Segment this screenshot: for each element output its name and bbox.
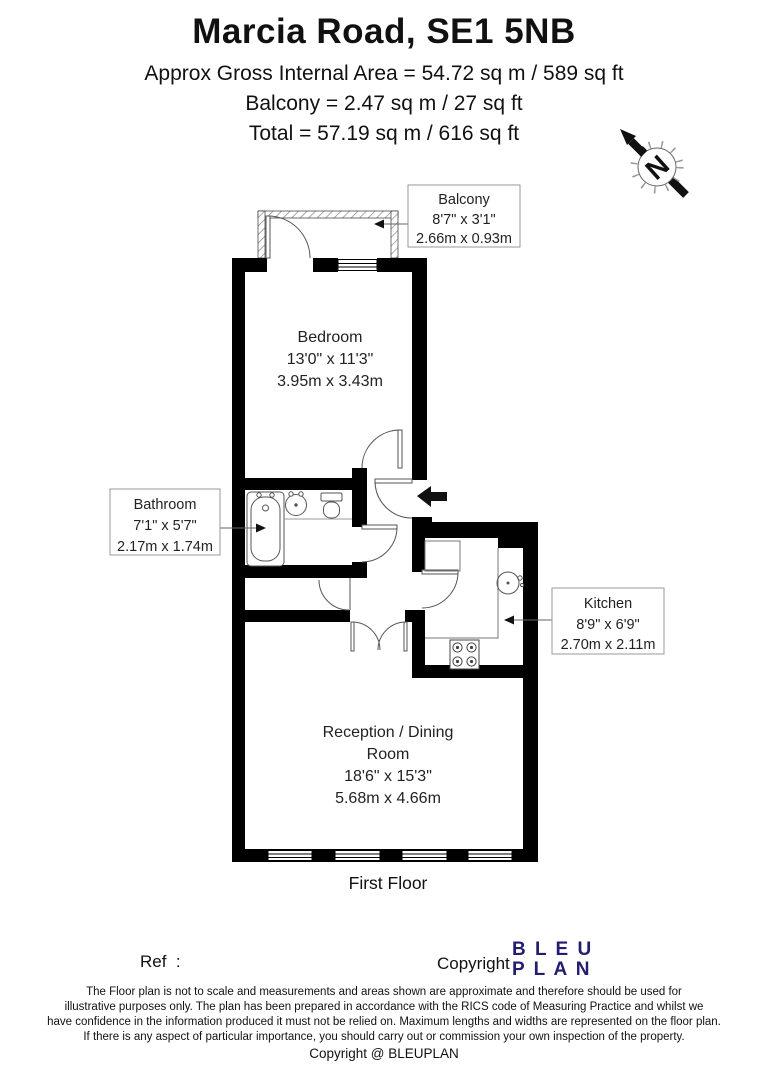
kitchen-name: Kitchen bbox=[584, 596, 632, 612]
balcony-door-swing bbox=[268, 216, 310, 258]
balcony-name: Balcony bbox=[438, 192, 490, 208]
entrance-arrow bbox=[417, 486, 447, 507]
balcony-imperial: 8'7" x 3'1" bbox=[432, 212, 495, 228]
ref-label: Ref : bbox=[140, 952, 181, 972]
kitchen-counter bbox=[425, 548, 498, 638]
reception-imperial: 18'6" x 15'3" bbox=[344, 768, 432, 785]
disclaimer-line-3: have confidence in the information produ… bbox=[0, 1016, 768, 1028]
bedroom-imperial: 13'0" x 11'3" bbox=[287, 351, 374, 368]
reception-door-swing-right bbox=[378, 622, 406, 650]
reception-metric: 5.68m x 4.66m bbox=[335, 790, 441, 807]
disclaimer-line-2: illustrative purposes only. The plan has… bbox=[0, 1001, 768, 1013]
entrance-door-swing bbox=[375, 481, 412, 518]
copyright-line: Copyright @ BLEUPLAN bbox=[0, 1046, 768, 1061]
bathroom-door-leaf bbox=[362, 525, 397, 529]
entrance-door-leaf bbox=[375, 479, 412, 483]
disclaimer-line-4: If there is any aspect of particular imp… bbox=[0, 1031, 768, 1043]
bedroom-door-leaf bbox=[398, 430, 402, 468]
disclaimer-line-1: The Floor plan is not to scale and measu… bbox=[0, 986, 768, 998]
north-arrow: N bbox=[620, 129, 686, 195]
bedroom-metric: 3.95m x 3.43m bbox=[277, 373, 383, 390]
reception-name-2: Room bbox=[367, 746, 410, 763]
balcony-leader-arrow bbox=[374, 220, 384, 229]
hob bbox=[450, 640, 479, 669]
balcony-walls bbox=[258, 211, 398, 258]
reception-door-leaf-left bbox=[351, 622, 354, 651]
balcony-metric: 2.66m x 0.93m bbox=[416, 231, 512, 247]
bedroom-door-swing bbox=[362, 430, 400, 468]
bedroom-name: Bedroom bbox=[298, 329, 363, 346]
reception-label: Reception / Dining Room 18'6" x 15'3" 5.… bbox=[323, 724, 454, 807]
reception-door-leaf-right bbox=[404, 622, 407, 651]
bathroom-name: Bathroom bbox=[134, 497, 197, 513]
floorplan-page: Marcia Road, SE1 5NB Approx Gross Intern… bbox=[0, 0, 768, 1087]
kitchen-door-swing bbox=[422, 572, 458, 608]
reception-door-swing-left bbox=[352, 622, 380, 650]
logo-line-2: P L A N bbox=[512, 960, 593, 980]
kitchen-imperial: 8'9" x 6'9" bbox=[576, 617, 639, 633]
kitchen-cabinet bbox=[425, 541, 460, 571]
copyright-label: Copyright bbox=[437, 954, 510, 974]
doors bbox=[266, 216, 458, 651]
kitchen-metric: 2.70m x 2.11m bbox=[561, 637, 656, 653]
kitchen-fixtures bbox=[425, 541, 524, 669]
bathroom-imperial: 7'1" x 5'7" bbox=[133, 518, 196, 534]
floor-plan-drawing: Bedroom 13'0" x 11'3" 3.95m x 3.43m Rece… bbox=[0, 0, 768, 910]
floor-label: First Floor bbox=[349, 873, 428, 893]
balcony-door-leaf bbox=[266, 216, 270, 258]
bedroom-window bbox=[338, 260, 377, 271]
logo-line-1: B L E U bbox=[512, 940, 593, 960]
cupboard-door-swing bbox=[319, 580, 349, 610]
bedroom-label: Bedroom 13'0" x 11'3" 3.95m x 3.43m bbox=[277, 329, 383, 390]
reception-name-1: Reception / Dining bbox=[323, 724, 454, 741]
toilet bbox=[321, 493, 342, 501]
kitchen-leader-arrow bbox=[504, 616, 514, 625]
bathroom-metric: 2.17m x 1.74m bbox=[117, 539, 213, 555]
bleuplan-logo: B L E U P L A N bbox=[512, 940, 593, 980]
bathroom-door-swing bbox=[362, 527, 397, 562]
